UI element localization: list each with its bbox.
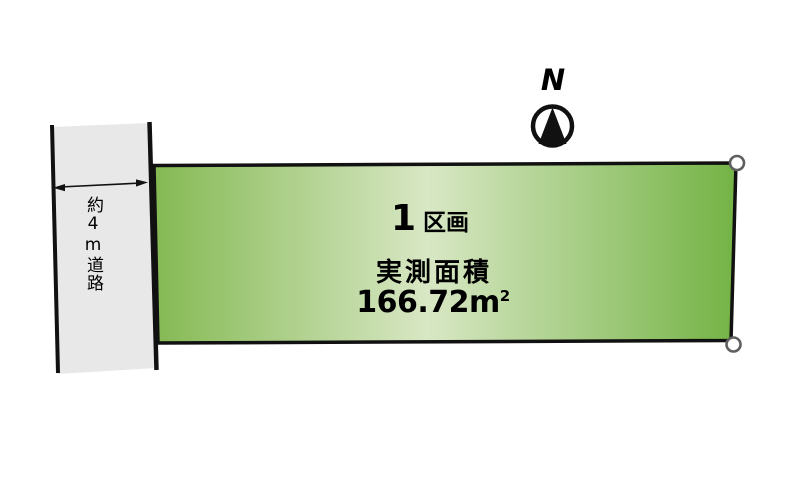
road-strip (51, 122, 157, 374)
road-surface (51, 123, 157, 374)
area-value-number: 166.72m (356, 285, 500, 320)
area-value-superscript: 2 (500, 287, 510, 305)
plot-number-suffix: 区画 (423, 210, 469, 236)
north-label: N (534, 64, 572, 96)
area-label: 実測面積 (376, 252, 492, 289)
north-compass-icon (533, 107, 572, 146)
site-plan-drawing (0, 0, 812, 483)
corner-marker-bottom-right (727, 338, 741, 352)
plot-number: 1 (391, 198, 416, 239)
road-label: 約4m道路 (82, 196, 104, 296)
corner-marker-top-right (730, 156, 744, 170)
site-plan-canvas: N 約4m道路 1区画 実測面積 166.72m2 (0, 0, 812, 483)
plot-title: 1区画 (391, 198, 469, 239)
area-value: 166.72m2 (356, 285, 509, 320)
